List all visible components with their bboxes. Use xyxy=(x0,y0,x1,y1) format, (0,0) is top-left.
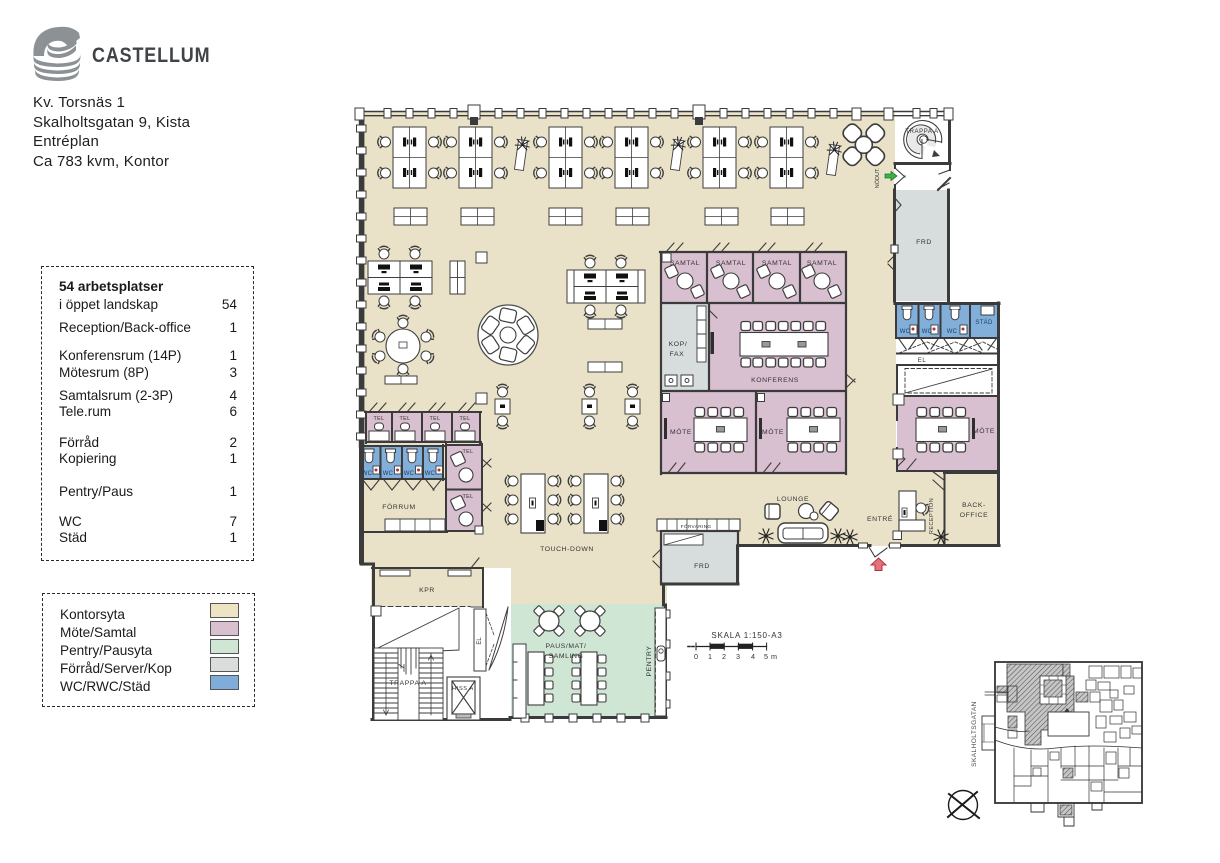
svg-text:TEL: TEL xyxy=(429,416,440,422)
svg-text:WC: WC xyxy=(404,471,415,477)
svg-text:WC: WC xyxy=(947,329,958,335)
svg-text:SKALHOLTSGATAN: SKALHOLTSGATAN xyxy=(971,701,978,767)
svg-text:TEL: TEL xyxy=(462,449,473,455)
svg-text:HISS A: HISS A xyxy=(452,686,474,692)
svg-text:ENTRÉ: ENTRÉ xyxy=(867,514,893,523)
svg-text:FRD: FRD xyxy=(916,239,932,246)
svg-text:PAUS/MAT/: PAUS/MAT/ xyxy=(545,643,586,650)
svg-text:MÖTE: MÖTE xyxy=(762,428,784,436)
svg-text:SAMTAL: SAMTAL xyxy=(807,260,837,267)
svg-text:SAMLING: SAMLING xyxy=(549,653,584,660)
svg-text:KPR: KPR xyxy=(419,587,435,594)
svg-text:WC: WC xyxy=(900,329,911,335)
svg-text:3: 3 xyxy=(736,652,740,661)
svg-text:EL: EL xyxy=(477,637,483,645)
svg-text:1: 1 xyxy=(708,652,712,661)
svg-text:MÖTE: MÖTE xyxy=(973,427,995,435)
svg-text:FÖRRUM: FÖRRUM xyxy=(382,503,415,511)
svg-text:OFFICE: OFFICE xyxy=(960,512,989,519)
svg-text:FRD: FRD xyxy=(694,563,710,570)
svg-text:TOUCH-DOWN: TOUCH-DOWN xyxy=(540,546,594,553)
svg-text:EL: EL xyxy=(918,358,927,364)
svg-text:TEL: TEL xyxy=(373,416,384,422)
svg-text:KOP/: KOP/ xyxy=(669,341,688,348)
svg-text:0: 0 xyxy=(694,652,698,661)
svg-text:WC: WC xyxy=(383,471,394,477)
svg-text:BACK-: BACK- xyxy=(962,502,986,509)
svg-text:RECEPTION: RECEPTION xyxy=(929,498,935,534)
svg-text:4: 4 xyxy=(751,652,755,661)
svg-text:KONFERENS: KONFERENS xyxy=(751,377,799,384)
svg-text:2: 2 xyxy=(722,652,726,661)
svg-text:PENTRY: PENTRY xyxy=(646,645,653,676)
svg-text:FAX: FAX xyxy=(670,351,685,358)
svg-text:MÖTE: MÖTE xyxy=(670,428,692,436)
svg-text:WC: WC xyxy=(425,471,436,477)
svg-text:TEL: TEL xyxy=(399,416,410,422)
svg-text:NÖDUT.: NÖDUT. xyxy=(874,167,881,188)
svg-text:STÄD: STÄD xyxy=(975,319,993,326)
svg-text:TEL: TEL xyxy=(459,416,470,422)
svg-text:TRAPPA A: TRAPPA A xyxy=(905,129,938,135)
svg-text:m: m xyxy=(771,652,777,661)
svg-text:TEL: TEL xyxy=(462,494,473,500)
svg-text:FÖRVARING: FÖRVARING xyxy=(681,523,712,530)
svg-text:WC: WC xyxy=(922,329,933,335)
svg-text:5: 5 xyxy=(764,652,768,661)
svg-text:WC: WC xyxy=(362,471,373,477)
svg-text:TRAPPA A: TRAPPA A xyxy=(389,680,426,687)
svg-text:SAMTAL: SAMTAL xyxy=(670,260,700,267)
svg-text:SKALA 1:150-A3: SKALA 1:150-A3 xyxy=(711,631,782,640)
svg-text:SAMTAL: SAMTAL xyxy=(716,260,746,267)
svg-text:SAMTAL: SAMTAL xyxy=(762,260,792,267)
svg-text:LOUNGE: LOUNGE xyxy=(777,496,809,503)
